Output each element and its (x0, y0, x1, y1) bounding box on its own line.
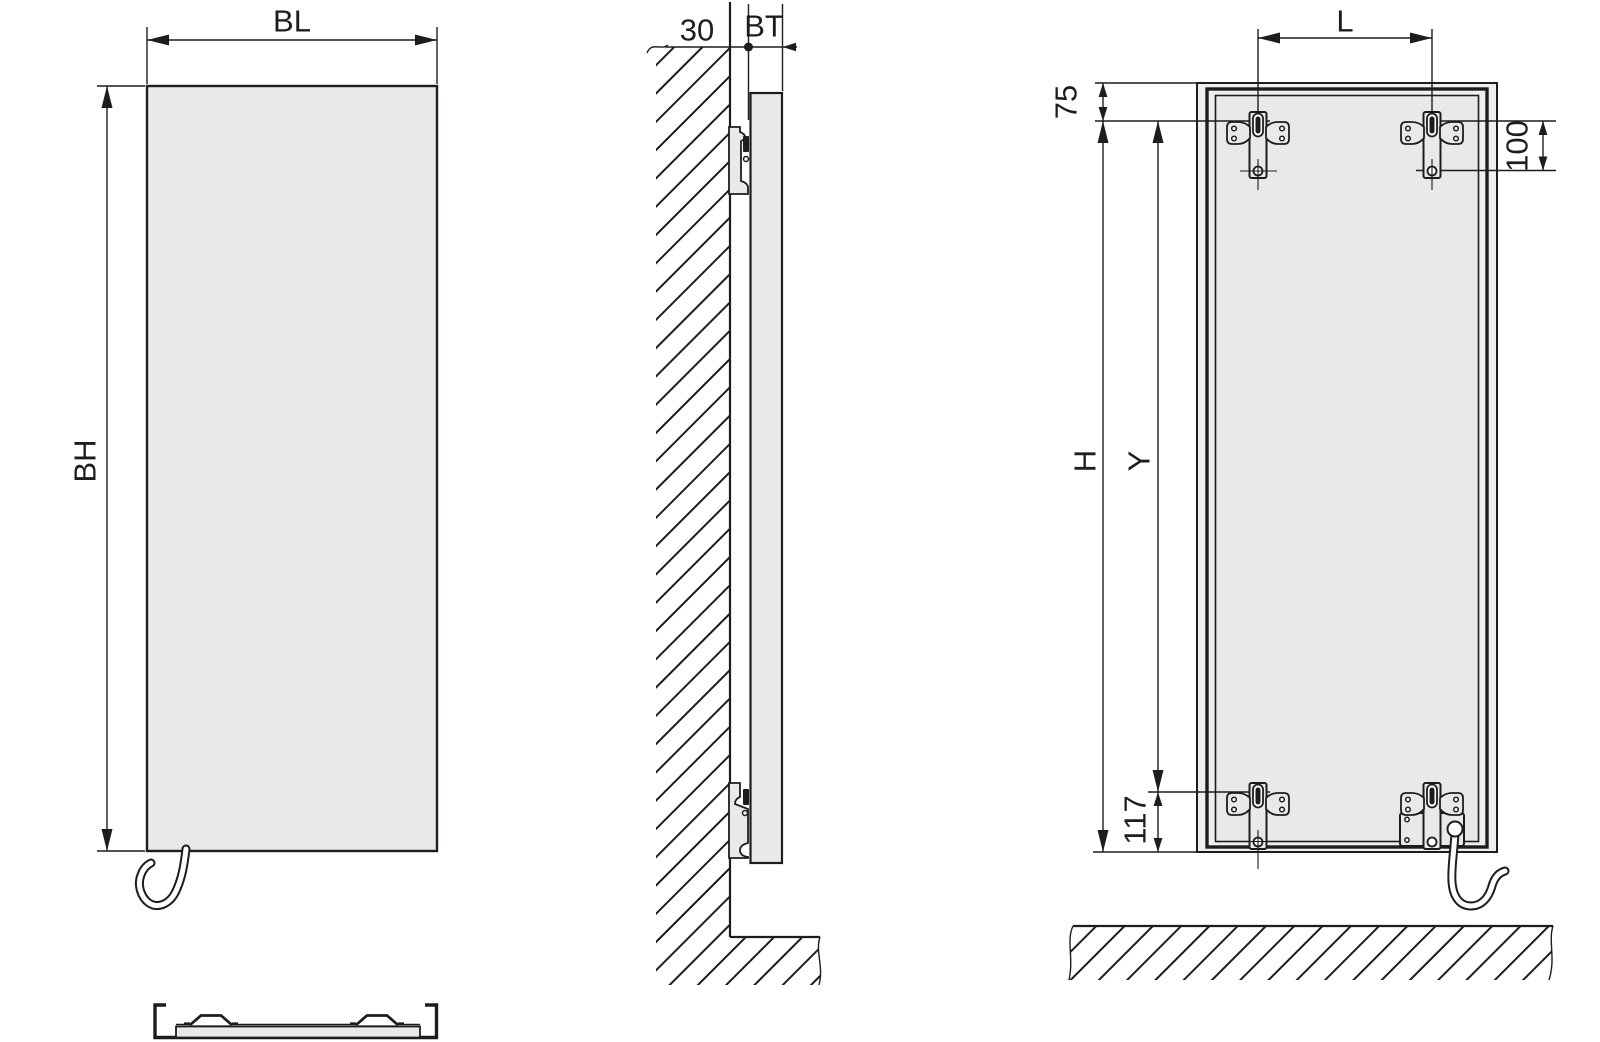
dimension-bh: BH (68, 86, 146, 851)
arrow-up-icon (102, 86, 113, 108)
arrow-down-icon (102, 829, 113, 851)
label-y: Y (1122, 451, 1157, 472)
front-view: BL BH (68, 4, 438, 1038)
arrow-left-icon (1258, 33, 1280, 44)
dimension-100: 100 (1500, 120, 1548, 172)
rear-frame (1197, 83, 1497, 852)
rear-view: L 75 (1049, 4, 1557, 981)
side-view: 30 BT (647, 2, 821, 985)
rear-floor (1069, 926, 1553, 980)
label-h: H (1068, 450, 1103, 472)
wall-bracket-top (729, 127, 749, 194)
label-bl: BL (273, 4, 311, 39)
label-75: 75 (1049, 85, 1084, 119)
arrow-left-icon (783, 43, 797, 51)
bottom-section-view (155, 1005, 437, 1038)
power-cable-front (139, 849, 186, 906)
label-117: 117 (1118, 795, 1153, 844)
dimension-y-117: Y 117 (1118, 121, 1164, 852)
radiator-technical-drawing: BL BH (0, 0, 1600, 1042)
dimension-bl: BL (147, 4, 437, 85)
label-bh: BH (68, 439, 103, 482)
label-30: 30 (680, 13, 714, 48)
section-bracket-right (356, 1016, 398, 1026)
cable-gland (1448, 822, 1463, 837)
technical-drawing-page: BL BH (0, 0, 1600, 1042)
radiator-side-panel (751, 93, 783, 863)
radiator-front-panel (147, 86, 437, 851)
arrow-right-icon (415, 35, 437, 46)
section-slab (176, 1027, 420, 1038)
dimension-dot (744, 43, 753, 52)
wall-bracket-bottom (729, 783, 749, 858)
dimension-h: H (1068, 121, 1109, 852)
dimension-75: 75 (1049, 83, 1108, 121)
arrow-left-icon (147, 35, 169, 46)
label-bt: BT (744, 9, 784, 44)
label-l: L (1336, 4, 1353, 39)
label-100: 100 (1500, 120, 1535, 172)
section-bracket-left (190, 1016, 232, 1026)
arrow-right-icon (1410, 33, 1432, 44)
